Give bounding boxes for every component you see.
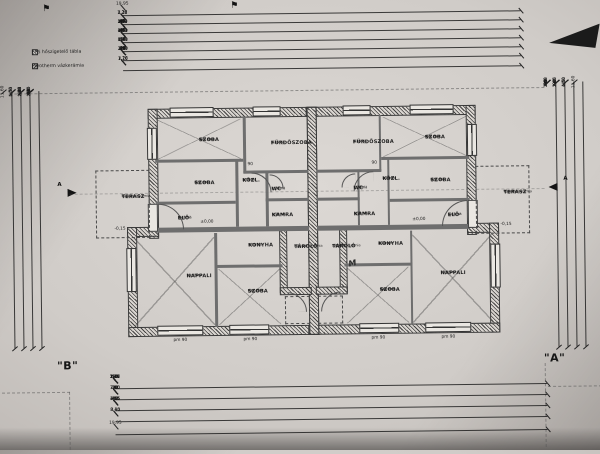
- plot-boundary-line: [548, 385, 600, 387]
- window: [253, 106, 281, 116]
- room-text: 9,60 m²: [248, 288, 261, 292]
- dim-value: 19,95: [109, 421, 122, 426]
- dim-tick: [519, 63, 524, 68]
- room-text: 8,01 m²: [194, 180, 207, 184]
- dim-value: 11,60: [1, 85, 6, 98]
- partition-wall: [214, 264, 282, 267]
- plot-boundary-line: [2, 392, 70, 394]
- dim-value: 1,35: [10, 87, 15, 97]
- plot-boundary-line: [69, 392, 71, 450]
- dim-value: 1,78: [118, 57, 128, 62]
- plot-boundary-line: [14, 87, 544, 94]
- partition-wall: [243, 117, 246, 173]
- window: [410, 104, 454, 115]
- section-letter-left: A: [57, 182, 61, 188]
- room-text: 3,43 m²: [178, 215, 191, 219]
- window: [157, 325, 203, 336]
- room-text: 4,70 m²: [122, 194, 135, 198]
- partition-wall: [235, 161, 238, 227]
- annotation-text: 90: [371, 161, 377, 166]
- room-text: 9,41 m²: [425, 134, 438, 138]
- dim-value: 1,20: [118, 38, 128, 43]
- room-text: 1,10 m²: [272, 186, 285, 190]
- dim-value: 40: [28, 88, 32, 94]
- wall-segment: [280, 230, 287, 292]
- partition-wall: [156, 201, 236, 204]
- room-text: 3,15 m²: [294, 244, 307, 248]
- room-text: 3,15 m²: [332, 243, 345, 247]
- diagonal-mark: [412, 234, 493, 323]
- room-text: 9,41 m²: [199, 137, 212, 141]
- dim-value: 1,20: [118, 20, 128, 25]
- room-text: 1,52 m²: [272, 212, 285, 216]
- room-text: 23,53 m²: [187, 273, 203, 277]
- room-text: 8,01 m²: [430, 177, 443, 181]
- dim-value: 1,60: [554, 77, 559, 87]
- terrace-outline: [318, 295, 343, 323]
- dim-value: 1,21: [563, 77, 568, 87]
- window: [467, 124, 477, 156]
- floor-plan-sheet: EPS hőszigetelő tábla Porotherm vázkerám…: [0, 0, 600, 454]
- window: [170, 107, 214, 118]
- legend-label: EPS hőszigetelő tábla: [32, 49, 81, 55]
- room-text: 23,53 m²: [441, 270, 457, 274]
- dim-value: 1,20: [117, 11, 127, 16]
- annotation-text: ±0,00: [412, 217, 425, 222]
- annotation-text: -0,15: [114, 227, 125, 232]
- dim-value: 11,60: [572, 75, 577, 88]
- annotation-text: pm 90: [173, 338, 187, 343]
- window: [343, 105, 371, 115]
- dim-chain-bottom-4: 19,95: [115, 421, 547, 435]
- north-arrow-icon: [548, 23, 600, 53]
- room-text: 8,10 m²: [378, 241, 391, 245]
- unit-mark-a: "A": [544, 351, 566, 364]
- room-text: 3,18 m²: [382, 176, 395, 180]
- section-flag-icon: ⚑: [42, 5, 50, 14]
- room-text: 1,52 m²: [354, 211, 367, 215]
- room-text: 3,76 m²: [271, 140, 284, 144]
- window: [425, 322, 471, 333]
- window: [147, 128, 157, 160]
- partition-wall: [317, 197, 360, 200]
- dim-value: 40: [112, 397, 118, 401]
- room-text: 9,60 m²: [380, 287, 393, 291]
- partition-wall: [266, 198, 309, 201]
- room-text: 8,10 m²: [248, 242, 261, 246]
- room-text: 1,10 m²: [354, 185, 367, 189]
- dim-value: 10: [112, 386, 118, 390]
- dim-chain-right-3: 11,60: [574, 82, 586, 347]
- dim-tick: [583, 344, 588, 349]
- diagonal-mark: [219, 268, 282, 325]
- dim-value: 45: [120, 47, 126, 51]
- annotation-text: pm 90: [371, 335, 385, 340]
- legend-label: Porotherm vázkerámia: [32, 63, 84, 69]
- dim-tick: [39, 346, 44, 351]
- annotation-text: ±0,00: [200, 220, 213, 225]
- annotation-text: pm 90: [243, 337, 257, 342]
- partition-wall: [387, 159, 390, 225]
- diagonal-mark: [347, 267, 410, 324]
- window: [359, 323, 399, 333]
- diagonal-mark: [134, 237, 215, 326]
- terrace-outline: [285, 296, 310, 324]
- annotation-text: pm 90: [441, 335, 455, 340]
- room-text: 3,43 m²: [448, 212, 461, 216]
- room-text: 4,70 m²: [504, 189, 517, 193]
- window: [229, 324, 269, 334]
- annotation-text: -0,15: [500, 222, 511, 227]
- dim-chain-left-3: 402,7010251,4090252,402590251,3540: [30, 91, 42, 348]
- handwritten-mark: M: [348, 258, 358, 269]
- dim-value: 40: [545, 79, 549, 85]
- room-text: 3,18 m²: [242, 178, 255, 182]
- room-text: 3,76 m²: [353, 139, 366, 143]
- dim-value: 1,20: [118, 29, 128, 34]
- annotation-text: 90: [247, 162, 253, 167]
- dim-value: 1,65: [19, 86, 24, 96]
- dim-value: 8,40: [110, 408, 120, 413]
- dim-value: 10: [112, 375, 118, 379]
- dim-value: 19,95: [116, 2, 129, 7]
- unit-mark-b: "B": [57, 359, 79, 372]
